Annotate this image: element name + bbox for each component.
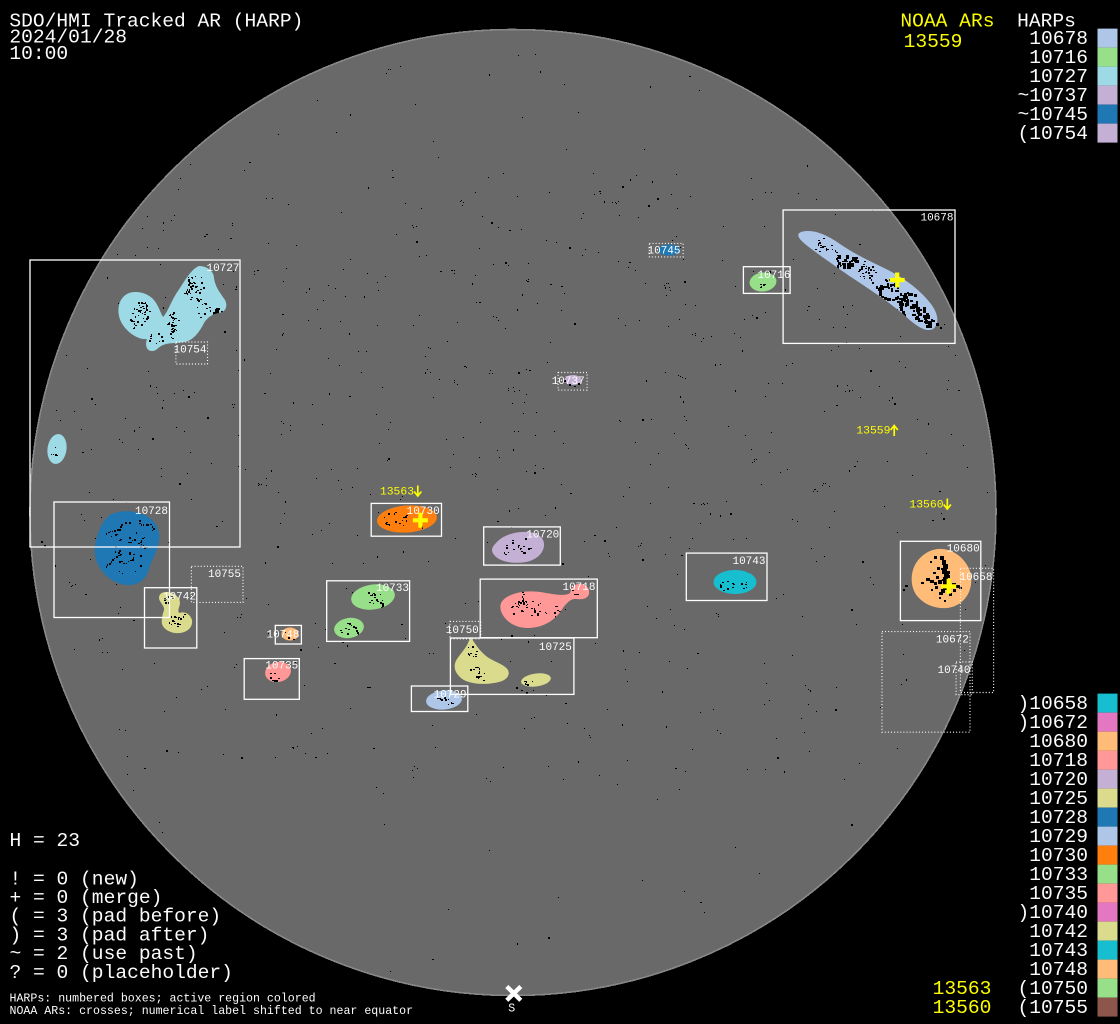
svg-text:10727: 10727 [206, 263, 239, 275]
svg-text:10728: 10728 [135, 506, 168, 518]
svg-text:10735: 10735 [265, 661, 298, 673]
svg-text:NOAA ARs: crosses; numerical l: NOAA ARs: crosses; numerical label shift… [10, 1005, 414, 1018]
svg-text:13559: 13559 [856, 425, 890, 437]
svg-text:10737: 10737 [552, 376, 585, 388]
svg-text:10658: 10658 [959, 572, 992, 584]
svg-text:10678: 10678 [920, 213, 953, 225]
svg-text:10743: 10743 [732, 556, 765, 568]
svg-text:(10754: (10754 [1017, 123, 1088, 145]
svg-text:10716: 10716 [757, 270, 790, 282]
svg-text:13559: 13559 [904, 31, 963, 53]
svg-text:(10755: (10755 [1017, 997, 1088, 1019]
svg-text:10725: 10725 [539, 642, 572, 654]
svg-text:10718: 10718 [562, 582, 595, 594]
svg-text:? = 0 (placeholder): ? = 0 (placeholder) [10, 962, 233, 984]
svg-text:10740: 10740 [937, 665, 970, 677]
svg-text:S: S [508, 1003, 515, 1016]
svg-text:10729: 10729 [434, 690, 467, 702]
svg-text:10742: 10742 [163, 592, 196, 604]
svg-text:10750: 10750 [446, 625, 479, 637]
svg-text:10733: 10733 [376, 583, 409, 595]
svg-text:10672: 10672 [936, 635, 969, 647]
svg-text:10730: 10730 [407, 506, 440, 518]
svg-text:10:00: 10:00 [9, 43, 68, 65]
svg-text:10745: 10745 [648, 246, 681, 258]
svg-text:10680: 10680 [947, 544, 980, 556]
svg-text:H = 23: H = 23 [10, 830, 81, 852]
svg-text:HARPs: numbered boxes; active: HARPs: numbered boxes; active region col… [10, 992, 316, 1005]
svg-text:13560: 13560 [933, 997, 992, 1019]
svg-text:10754: 10754 [174, 345, 207, 357]
svg-text:10720: 10720 [526, 530, 559, 542]
svg-text:NOAA ARs: NOAA ARs [900, 10, 994, 32]
svg-text:13560: 13560 [909, 500, 943, 512]
svg-text:10748: 10748 [266, 630, 299, 642]
svg-text:13563: 13563 [380, 486, 414, 498]
svg-text:10755: 10755 [208, 569, 241, 581]
